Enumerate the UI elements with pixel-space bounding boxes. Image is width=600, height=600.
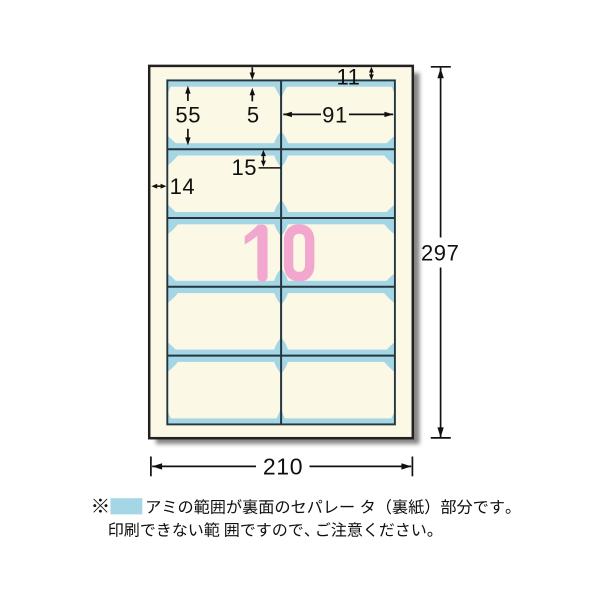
svg-text:210: 210 [263,454,303,480]
svg-text:14: 14 [170,174,196,199]
svg-text:15: 15 [231,155,257,180]
svg-text:297: 297 [421,240,460,265]
svg-text:55: 55 [175,102,201,127]
svg-text:11: 11 [336,65,360,90]
svg-text:91: 91 [322,102,348,127]
svg-text:5: 5 [247,102,260,127]
